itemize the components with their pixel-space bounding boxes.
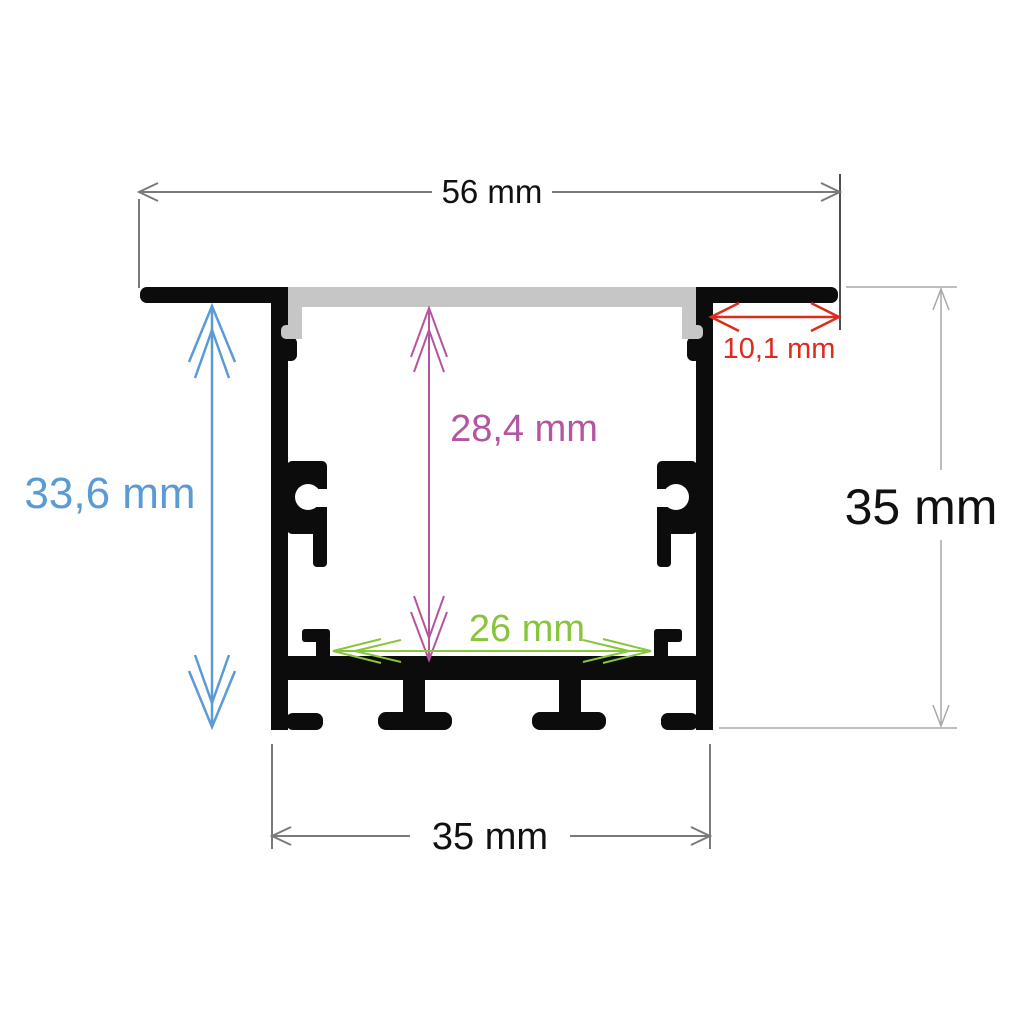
clip-groove-cutouts — [288, 484, 696, 572]
clip-slot-right — [656, 489, 668, 507]
dim-bottom-width: 35 mm — [272, 744, 710, 858]
clip-slot-left — [316, 489, 328, 507]
clip-notch-left — [288, 534, 313, 572]
diffuser-foot-right — [682, 325, 703, 339]
clip-leg-right — [657, 507, 671, 567]
cover-lug-left — [283, 337, 297, 361]
flange-right — [696, 287, 838, 303]
inner-height-label: 28,4 mm — [450, 408, 598, 450]
flange-left — [140, 287, 288, 303]
diffuser-cover — [281, 287, 703, 339]
dim-inner-width: 26 mm — [333, 608, 651, 663]
flange-right-width-label: 10,1 mm — [723, 333, 836, 365]
dim-inner-height-lines — [411, 308, 447, 660]
diagram-canvas: 56 mm 33,6 mm 28,4 mm 2 — [0, 0, 1024, 1024]
outer-foot-right — [661, 713, 698, 730]
dim-left-height: 33,6 mm — [24, 306, 235, 727]
strip-hook-left-leg — [316, 640, 330, 659]
base-plate — [281, 656, 703, 680]
diffuser-slab — [288, 287, 696, 307]
right-height-label: 35 mm — [845, 479, 998, 535]
top-width-label: 56 mm — [442, 173, 543, 210]
t-foot-cap-right — [532, 712, 606, 730]
diffuser-foot-left — [281, 325, 302, 339]
dim-left-height-lines — [189, 306, 235, 727]
dim-flange-right-lines — [711, 303, 839, 331]
clip-notch-right — [671, 534, 696, 572]
t-foot-stem-left — [403, 678, 425, 715]
profile-dimension-diagram: 56 mm 33,6 mm 28,4 mm 2 — [0, 0, 1024, 1024]
cover-lug-right — [687, 337, 701, 361]
bottom-width-label: 35 mm — [432, 816, 548, 858]
t-foot-cap-left — [378, 712, 452, 730]
left-height-label: 33,6 mm — [24, 469, 195, 518]
outer-foot-left — [286, 713, 323, 730]
clip-leg-left — [313, 507, 327, 567]
strip-hook-right-leg — [654, 640, 668, 659]
t-foot-stem-right — [559, 678, 581, 715]
inner-width-label: 26 mm — [469, 608, 585, 650]
dim-flange-right-width: 10,1 mm — [711, 303, 839, 365]
